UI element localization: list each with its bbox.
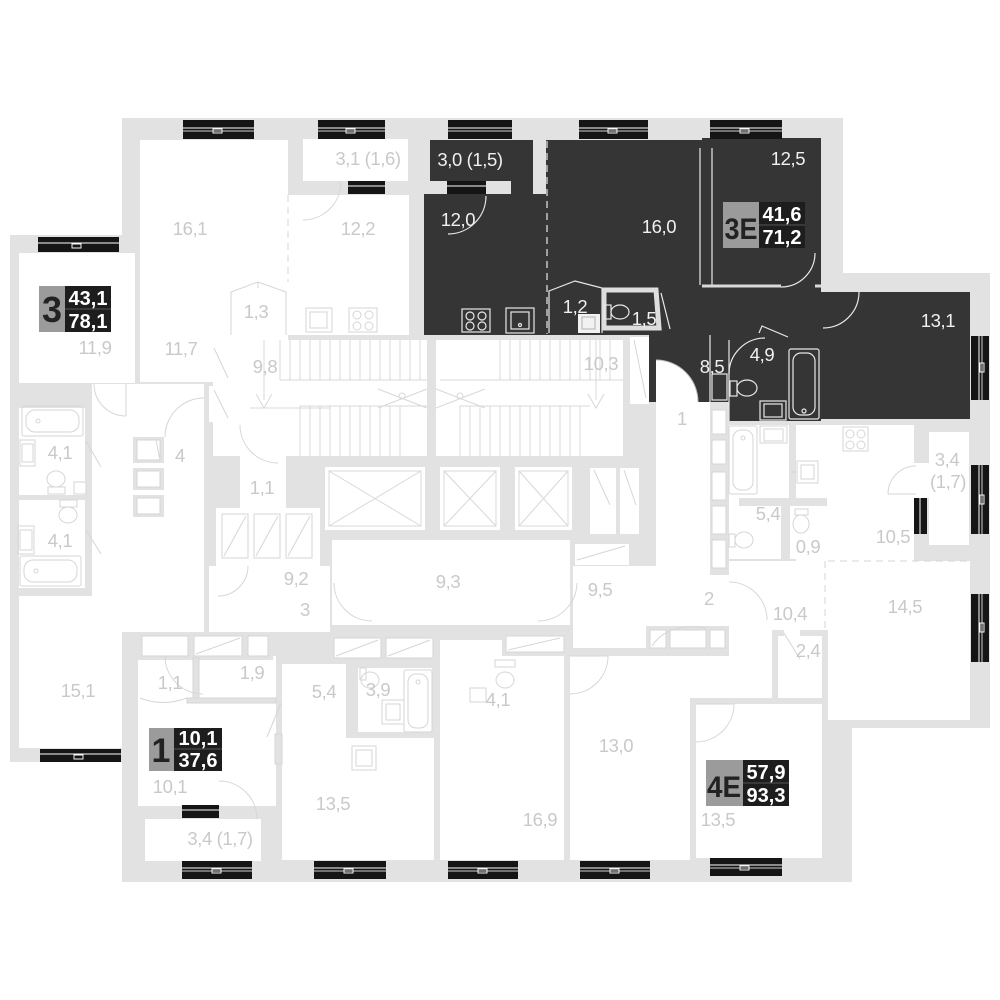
svg-text:9,3: 9,3	[436, 571, 461, 592]
svg-text:8,5: 8,5	[700, 356, 725, 377]
svg-text:4Е: 4Е	[707, 771, 741, 804]
svg-text:11,7: 11,7	[164, 338, 197, 359]
svg-text:1,1: 1,1	[250, 477, 275, 498]
svg-text:3Е: 3Е	[725, 213, 758, 246]
svg-text:9,2: 9,2	[284, 568, 309, 589]
svg-text:12,0: 12,0	[441, 209, 476, 230]
svg-text:4: 4	[175, 445, 185, 466]
svg-text:10,1: 10,1	[179, 728, 218, 750]
svg-text:11,9: 11,9	[78, 337, 111, 358]
svg-text:3,1 (1,6): 3,1 (1,6)	[335, 148, 401, 169]
svg-text:5,4: 5,4	[756, 503, 781, 524]
svg-text:3,9: 3,9	[366, 679, 391, 700]
svg-text:78,1: 78,1	[69, 311, 108, 333]
svg-text:37,6: 37,6	[179, 750, 218, 772]
svg-text:2: 2	[704, 588, 714, 609]
svg-text:16,1: 16,1	[173, 218, 208, 239]
svg-text:9,8: 9,8	[253, 356, 278, 377]
svg-text:4,1: 4,1	[486, 689, 511, 710]
svg-text:71,2: 71,2	[763, 227, 802, 249]
svg-text:0,9: 0,9	[796, 536, 821, 557]
svg-text:5,4: 5,4	[312, 681, 337, 702]
svg-text:1: 1	[152, 732, 171, 770]
svg-text:3,4: 3,4	[935, 449, 960, 470]
svg-text:1: 1	[677, 408, 687, 429]
svg-text:10,1: 10,1	[153, 776, 188, 797]
svg-text:2,4: 2,4	[796, 640, 821, 661]
svg-text:13,0: 13,0	[599, 735, 634, 756]
svg-text:14,5: 14,5	[888, 596, 923, 617]
svg-text:10,4: 10,4	[773, 603, 808, 624]
svg-text:13,1: 13,1	[921, 310, 956, 331]
svg-text:1,3: 1,3	[244, 301, 269, 322]
svg-text:12,2: 12,2	[341, 218, 376, 239]
svg-text:9,5: 9,5	[588, 579, 613, 600]
svg-text:16,0: 16,0	[642, 216, 677, 237]
svg-text:13,5: 13,5	[316, 793, 351, 814]
svg-text:41,6: 41,6	[763, 204, 802, 226]
svg-text:1,2: 1,2	[563, 296, 588, 317]
svg-text:10,3: 10,3	[584, 353, 619, 374]
svg-text:12,5: 12,5	[771, 148, 806, 169]
svg-text:3: 3	[42, 289, 62, 330]
svg-text:93,3: 93,3	[747, 785, 786, 807]
svg-text:16,9: 16,9	[523, 809, 558, 830]
svg-text:3,4 (1,7): 3,4 (1,7)	[187, 828, 253, 849]
svg-text:3,0 (1,5): 3,0 (1,5)	[437, 149, 503, 170]
svg-text:4,9: 4,9	[750, 344, 775, 365]
svg-text:3: 3	[300, 599, 310, 620]
svg-text:15,1: 15,1	[61, 680, 96, 701]
svg-text:4,1: 4,1	[48, 442, 73, 463]
svg-text:43,1: 43,1	[69, 288, 108, 310]
svg-text:57,9: 57,9	[747, 762, 786, 784]
svg-text:4,1: 4,1	[48, 530, 73, 551]
svg-text:10,5: 10,5	[876, 526, 911, 547]
svg-text:1,5: 1,5	[632, 308, 657, 329]
svg-text:1,9: 1,9	[240, 662, 265, 683]
svg-text:13,5: 13,5	[701, 809, 736, 830]
svg-text:(1,7): (1,7)	[930, 471, 966, 492]
svg-text:1,1: 1,1	[158, 672, 183, 693]
